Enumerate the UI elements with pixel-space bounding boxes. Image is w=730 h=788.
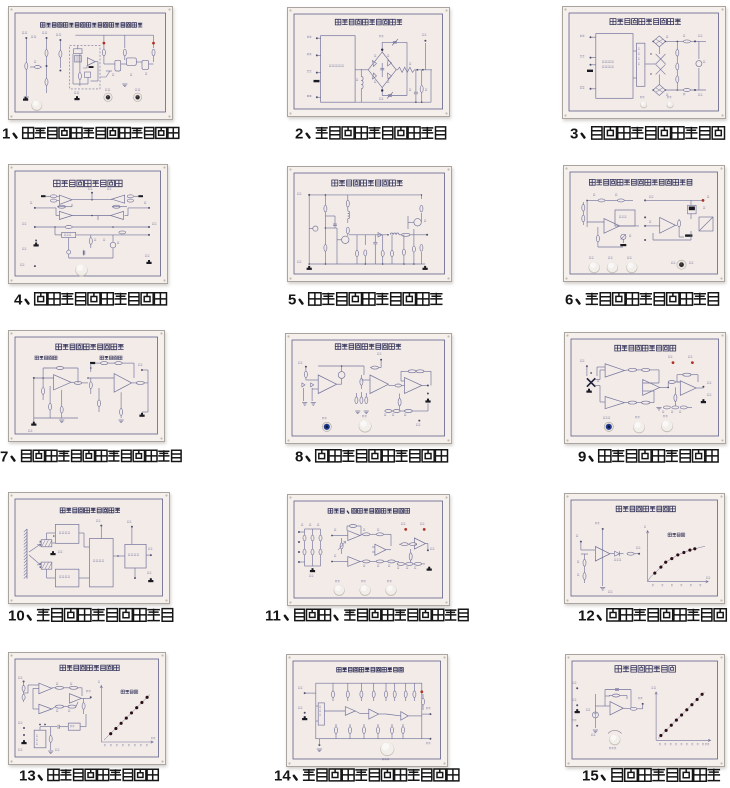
- svg-text:11: 11: [265, 607, 281, 624]
- svg-text:4: 4: [14, 291, 23, 308]
- svg-text:2: 2: [295, 125, 303, 142]
- svg-text:10: 10: [8, 607, 25, 624]
- svg-text:6: 6: [565, 291, 573, 308]
- svg-text:7: 7: [0, 448, 8, 465]
- svg-text:9: 9: [578, 448, 586, 465]
- svg-text:5: 5: [288, 291, 296, 308]
- svg-text:8: 8: [295, 448, 303, 465]
- svg-text:3: 3: [570, 125, 578, 142]
- svg-text:13: 13: [19, 767, 36, 784]
- svg-text:14: 14: [274, 767, 291, 784]
- svg-text:15: 15: [582, 767, 599, 784]
- svg-text:12: 12: [578, 607, 595, 624]
- svg-text:1: 1: [2, 125, 10, 142]
